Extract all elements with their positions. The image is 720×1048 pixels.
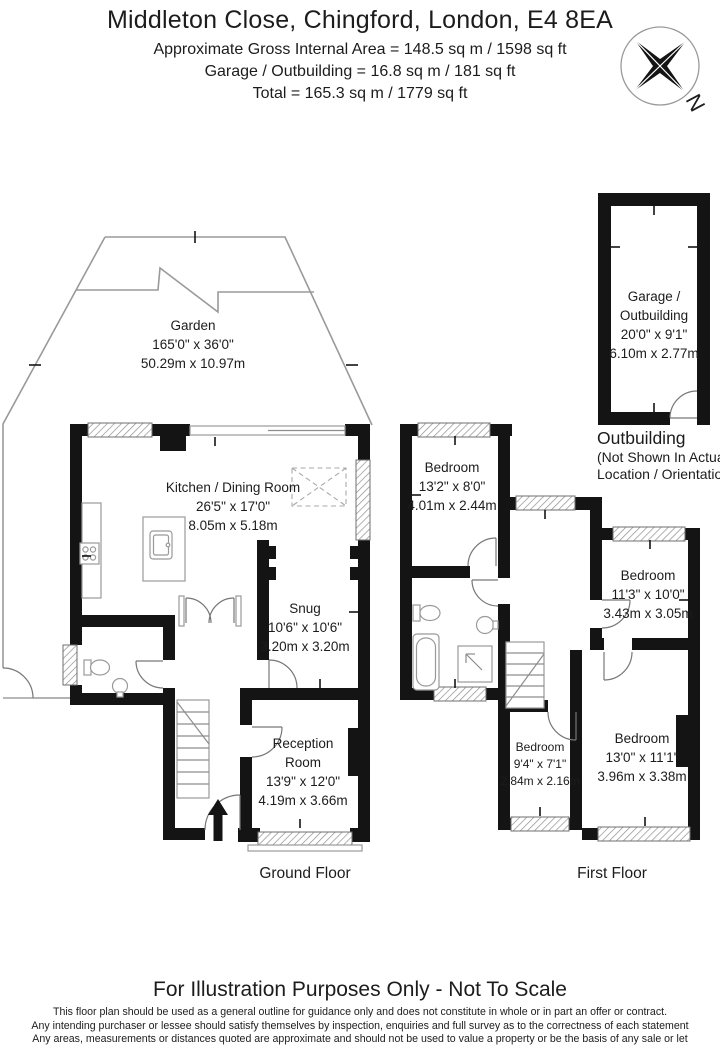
room-dims-imperial: 13'9" x 12'0" — [266, 774, 340, 789]
outbuilding-note-line1: (Not Shown In Actual — [597, 449, 720, 465]
page-title: Middleton Close, Chingford, London, E4 8… — [0, 6, 720, 35]
room-dims-metric: 3.96m x 3.38m — [597, 769, 686, 784]
room-label-garage-2: Outbuilding — [620, 308, 688, 323]
window — [516, 496, 575, 510]
footer-disclaimer: For Illustration Purposes Only - Not To … — [0, 978, 720, 1047]
room-dims-metric: 4.19m x 3.66m — [258, 793, 347, 808]
toilet-icon — [413, 605, 440, 621]
bath-icon — [413, 634, 439, 690]
window — [63, 645, 77, 685]
floorplan-page: N — [0, 0, 720, 1048]
window — [598, 827, 690, 841]
room-label-garden: Garden — [170, 318, 215, 333]
window — [434, 687, 486, 701]
window — [356, 460, 370, 540]
header: Middleton Close, Chingford, London, E4 8… — [0, 6, 720, 105]
room-label-reception: Reception — [273, 736, 334, 751]
room-dims-imperial: 20'0" x 9'1" — [621, 327, 688, 342]
disclaimer-line2: Any intending purchaser or lessee should… — [0, 1020, 720, 1034]
room-label-garage: Garage / — [628, 289, 681, 304]
room-dims-imperial: 13'2" x 8'0" — [419, 479, 486, 494]
shower-icon — [458, 646, 492, 682]
disclaimer-title: For Illustration Purposes Only - Not To … — [0, 978, 720, 1002]
first-floor-label: First Floor — [577, 865, 647, 882]
outbuilding-title: Outbuilding — [597, 428, 686, 448]
glazed-doors — [190, 426, 345, 435]
room-dims-imperial: 11'3" x 10'0" — [611, 587, 684, 602]
room-label-bedroom4: Bedroom — [516, 740, 565, 754]
room-label-snug: Snug — [289, 601, 321, 616]
room-dims-metric: 2.84m x 2.16m — [500, 774, 579, 788]
window — [511, 817, 569, 831]
stove-icon — [80, 543, 99, 564]
ground-floor-label: Ground Floor — [259, 865, 350, 882]
room-dims-metric: 8.05m x 5.18m — [188, 518, 277, 533]
room-dims-imperial: 9'4" x 7'1" — [514, 757, 566, 771]
room-dims-imperial: 10'6" x 10'6" — [268, 620, 342, 635]
bay-window — [248, 832, 362, 851]
room-label-reception-2: Room — [285, 755, 321, 770]
outbuilding-note-line2: Location / Orientation) — [597, 466, 720, 482]
stairs — [177, 700, 209, 798]
room-dims-metric: 3.43m x 3.05m — [603, 606, 692, 621]
disclaimer-line1: This floor plan should be used as a gene… — [0, 1006, 720, 1020]
room-dims-imperial: 13'0" x 11'1" — [605, 750, 678, 765]
gross-internal-area: Approximate Gross Internal Area = 148.5 … — [0, 39, 720, 61]
room-dims-imperial: 26'5" x 17'0" — [196, 499, 270, 514]
room-label-kitchen: Kitchen / Dining Room — [166, 480, 300, 495]
stairs — [506, 642, 544, 708]
window — [613, 527, 685, 541]
window — [88, 423, 152, 437]
total-area: Total = 165.3 sq m / 1779 sq ft — [0, 83, 720, 105]
room-dims-metric: 50.29m x 10.97m — [141, 356, 245, 371]
window — [418, 423, 490, 437]
room-label-bedroom2: Bedroom — [621, 568, 676, 583]
kitchen-island — [143, 517, 185, 581]
room-dims-metric: 4.01m x 2.44m — [407, 498, 496, 513]
toilet-icon — [84, 660, 110, 675]
room-dims-metric: 6.10m x 2.77m — [609, 346, 698, 361]
sink-icon — [150, 531, 172, 559]
room-label-bedroom3: Bedroom — [615, 731, 670, 746]
floorplan-drawing: N — [0, 0, 720, 1048]
garage-outbuilding-area: Garage / Outbuilding = 16.8 sq m / 181 s… — [0, 61, 720, 83]
disclaimer-line3: Any areas, measurements or distances quo… — [0, 1033, 720, 1047]
room-dims-imperial: 165'0" x 36'0" — [152, 337, 234, 352]
room-label-bedroom1: Bedroom — [425, 460, 480, 475]
room-dims-metric: 3.20m x 3.20m — [260, 639, 349, 654]
